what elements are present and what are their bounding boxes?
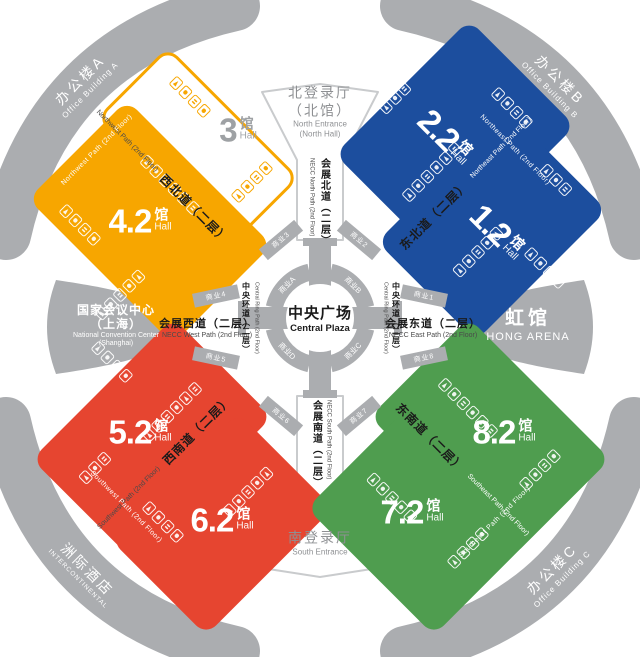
path-label-zh: 会展北道（二层） xyxy=(317,158,332,246)
wing-label-zh: 国家会议中心 xyxy=(73,303,159,317)
path-label-en: Central Ring Path (2nd Floor) xyxy=(383,282,389,354)
path-south: 会展南道（二层） NECC South Path (2nd Floor) xyxy=(309,400,332,488)
plaza-label-zh: 中央广场 xyxy=(288,302,352,323)
hall-unit-en: Hall xyxy=(518,433,535,444)
hall-number: 8.2 xyxy=(472,416,515,449)
central-plaza-label: 中央广场 Central Plaza xyxy=(288,302,352,334)
connector-label: 商业1 xyxy=(413,289,436,303)
path-label-zh: 中央环道（二层） xyxy=(241,282,252,354)
wing-label-zh: 虹馆 xyxy=(486,308,569,331)
entrance-label-en: South Entrance xyxy=(288,547,352,557)
hall-unit-en: Hall xyxy=(240,131,257,142)
path-label-en: NECC South Path (2nd Floor) xyxy=(326,400,332,479)
connector-label: 商业5 xyxy=(205,351,228,365)
hall-unit: 馆 xyxy=(240,117,257,132)
path-central-ring-east: Central Ring Path (2nd Floor) 中央环道（二层） xyxy=(383,282,402,354)
path-north: NECC North Path (2nd Floor) 会展北道（二层） xyxy=(309,158,332,246)
path-label-zh: 会展南道（二层） xyxy=(309,400,324,488)
entrance-label-zh: 北登录厅 xyxy=(288,85,352,103)
hall-number: 7.2 xyxy=(380,496,423,529)
hall-8-2-label: 8.2 馆Hall xyxy=(472,416,535,449)
path-label-zh: 中央环道（二层） xyxy=(391,282,402,354)
hall-unit: 馆 xyxy=(518,419,535,434)
north-entrance-label: 北登录厅 （北馆） North Entrance (North Hall) xyxy=(288,85,352,140)
hall-3-label: 3 馆Hall xyxy=(219,114,257,147)
national-convention-center-label: 国家会议中心 （上海） National Convention Center (… xyxy=(73,303,159,349)
entrance-label-zh2: （北馆） xyxy=(288,102,352,120)
wing-label-en2: (Shanghai) xyxy=(73,340,159,348)
path-label-en: Central Ring Path (2nd Floor) xyxy=(254,282,260,354)
plaza-label-en: Central Plaza xyxy=(288,323,352,334)
necc-venue-map: 商业1 商业2 商业3 商业4 商业5 商业6 商业7 商业8 3 馆Hall … xyxy=(0,0,640,657)
entrance-label-en: North Entrance xyxy=(288,120,352,130)
entrance-label-en2: (North Hall) xyxy=(288,130,352,140)
hall-unit: 馆 xyxy=(154,208,171,223)
hall-unit-en: Hall xyxy=(426,513,443,524)
hall-6-2-label: 6.2 馆Hall xyxy=(190,504,253,537)
hall-unit: 馆 xyxy=(426,499,443,514)
hall-number: 5.2 xyxy=(108,416,151,449)
hall-unit: 馆 xyxy=(236,507,253,522)
hall-number: 3 xyxy=(219,114,236,147)
hall-unit-en: Hall xyxy=(154,222,171,233)
wing-label-en: National Convention Center xyxy=(73,332,159,340)
south-entrance-label: 南登录厅 South Entrance xyxy=(288,529,352,557)
hall-unit: 馆 xyxy=(154,419,171,434)
hall-4-2-label: 4.2 馆Hall xyxy=(108,205,171,238)
wing-label-en: HONG ARENA xyxy=(486,331,569,344)
hall-7-2-label: 7.2 馆Hall xyxy=(380,496,443,529)
path-label-en: NECC North Path (2nd Floor) xyxy=(309,158,315,236)
hall-unit-en: Hall xyxy=(236,521,253,532)
path-central-ring-west: 中央环道（二层） Central Ring Path (2nd Floor) xyxy=(241,282,260,354)
hong-arena-label: 虹馆 HONG ARENA xyxy=(486,308,569,344)
hall-number: 6.2 xyxy=(190,504,233,537)
hall-5-2-label: 5.2 馆Hall xyxy=(108,416,171,449)
entrance-label-zh: 南登录厅 xyxy=(288,529,352,547)
wing-label-zh2: （上海） xyxy=(73,318,159,332)
connector-label: 商业4 xyxy=(205,289,228,303)
connector-label: 商业8 xyxy=(413,351,436,365)
hall-unit-en: Hall xyxy=(154,433,171,444)
hall-number: 4.2 xyxy=(108,205,151,238)
